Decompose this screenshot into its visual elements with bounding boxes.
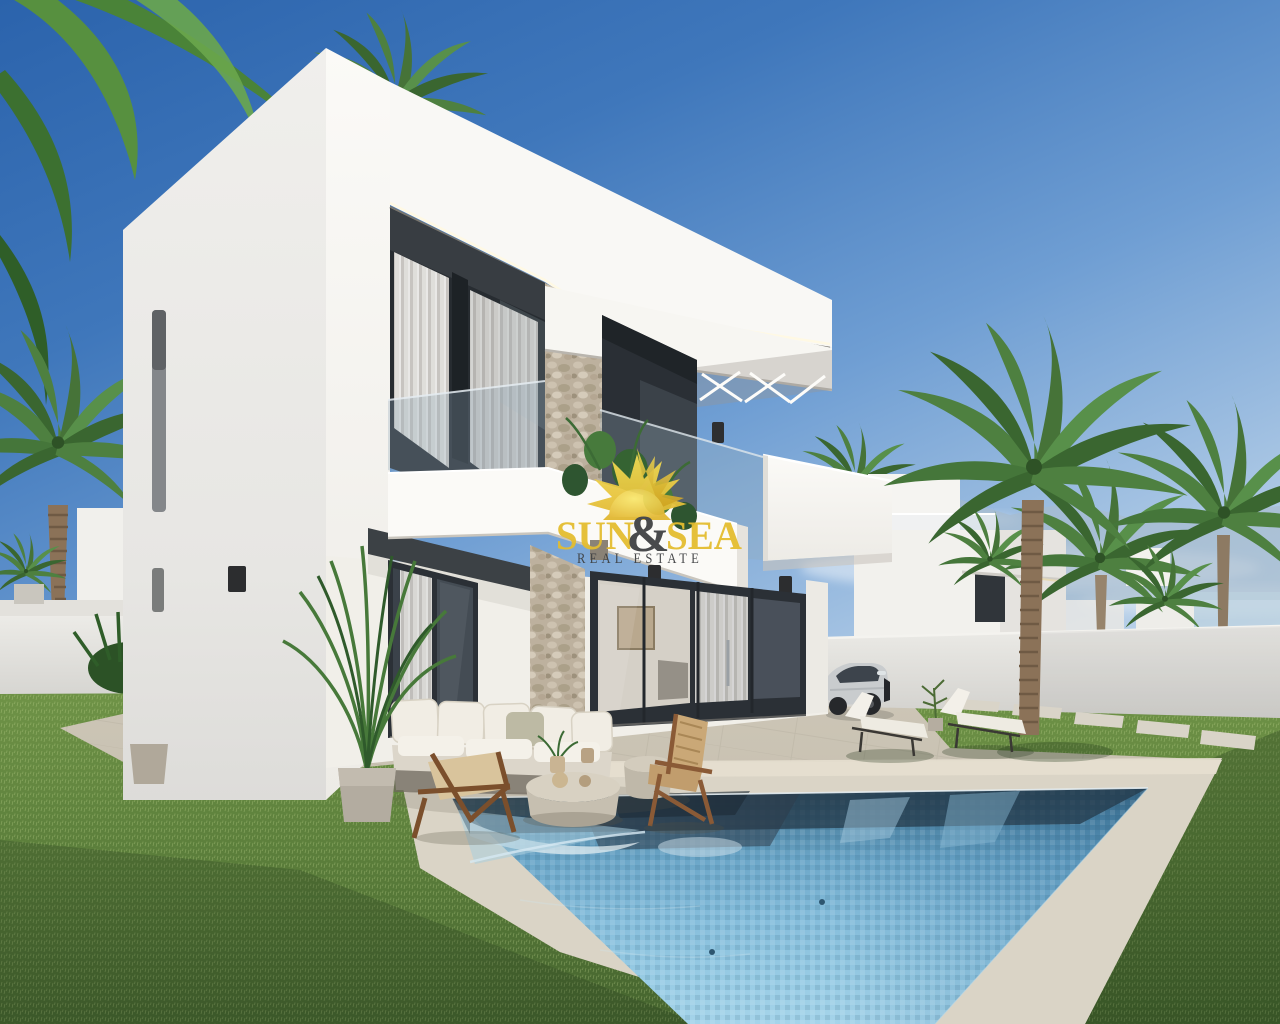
sconce-upper-right [712,422,724,443]
watermark-tagline: REAL ESTATE [577,551,703,567]
sconce-left-face [228,566,246,592]
gate-pillar [77,508,127,612]
scene-canvas: SUN & SEA REAL ESTATE [0,0,1280,1024]
ground-pier-right [806,580,828,714]
right-wall [826,626,1280,718]
slider-door-main [590,571,806,728]
slit-window-lower [152,568,164,612]
villa-photo: SUN & SEA REAL ESTATE [0,0,1280,1024]
